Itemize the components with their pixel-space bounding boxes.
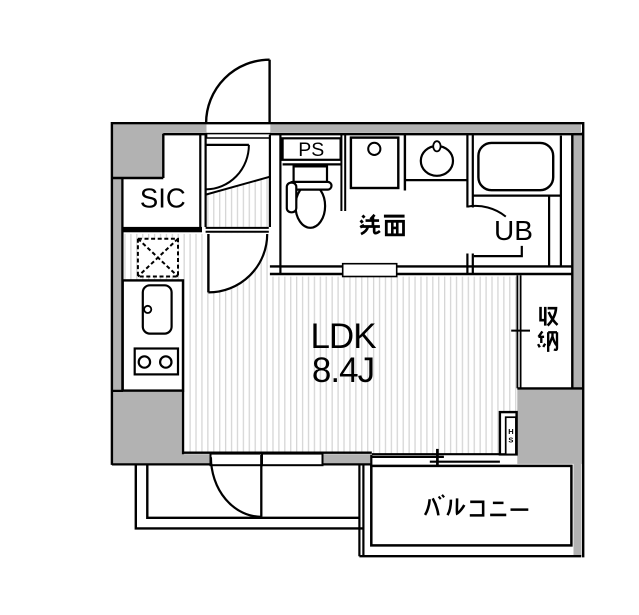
svg-text:8.4J: 8.4J	[312, 351, 374, 390]
svg-text:SIC: SIC	[140, 183, 186, 214]
svg-text:UB: UB	[494, 215, 533, 246]
svg-text:PS: PS	[298, 139, 324, 161]
svg-text:S: S	[508, 436, 513, 445]
